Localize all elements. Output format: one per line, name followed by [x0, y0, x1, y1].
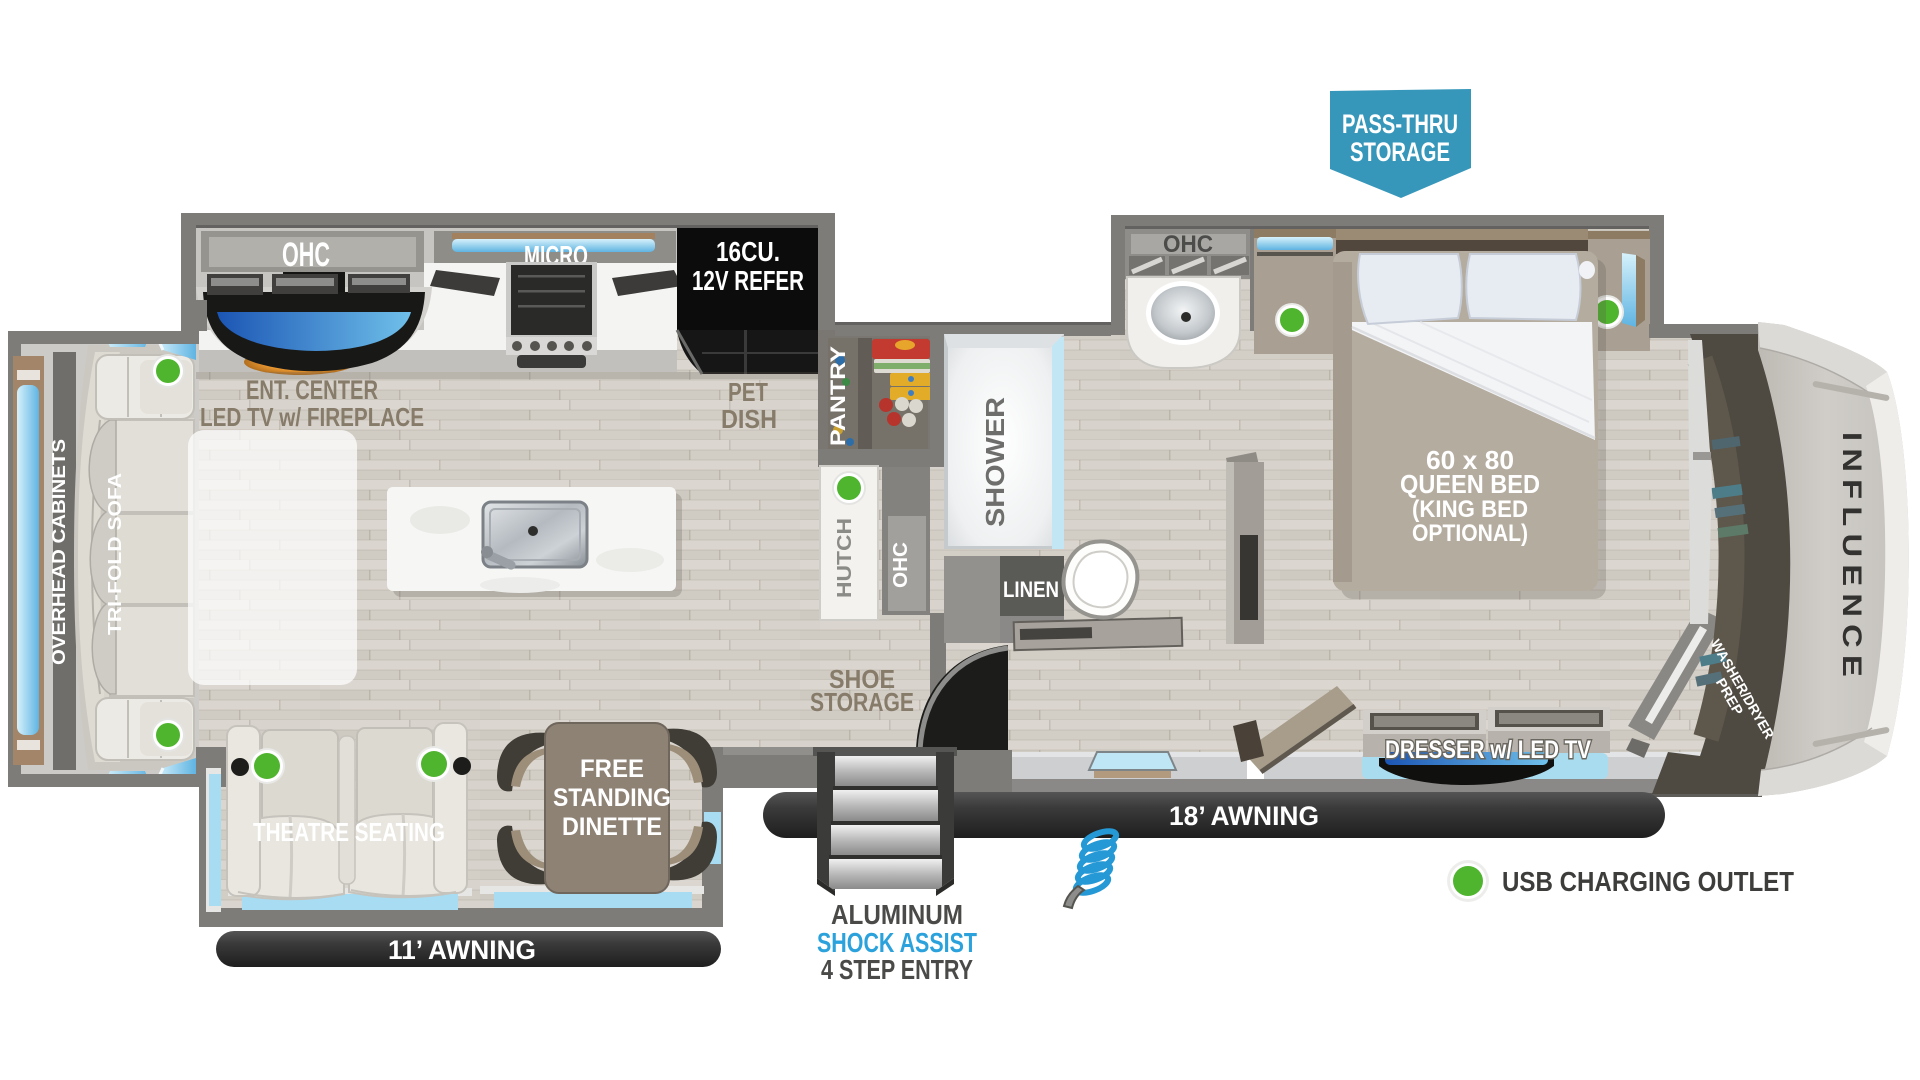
svg-text:STORAGE: STORAGE — [810, 687, 914, 717]
svg-text:ENT. CENTER: ENT. CENTER — [246, 375, 378, 405]
svg-text:16CU.: 16CU. — [716, 236, 780, 267]
svg-text:FREE: FREE — [580, 755, 644, 783]
svg-text:OHC: OHC — [890, 542, 912, 588]
svg-text:OHC: OHC — [1163, 231, 1213, 258]
svg-text:DISH: DISH — [721, 404, 777, 434]
svg-text:LED TV w/ FIREPLACE: LED TV w/ FIREPLACE — [200, 402, 424, 432]
svg-text:QUEEN BED: QUEEN BED — [1400, 469, 1540, 499]
svg-text:LINEN: LINEN — [1003, 577, 1059, 602]
svg-text:4 STEP ENTRY: 4 STEP ENTRY — [821, 954, 973, 985]
svg-text:INFLUENCE: INFLUENCE — [1837, 432, 1867, 684]
svg-text:OVERHEAD CABINETS: OVERHEAD CABINETS — [49, 439, 69, 665]
svg-text:OPTIONAL): OPTIONAL) — [1412, 520, 1528, 547]
svg-text:PANTRY: PANTRY — [827, 346, 850, 446]
svg-text:SHOWER: SHOWER — [980, 397, 1010, 527]
svg-text:DINETTE: DINETTE — [562, 813, 662, 841]
svg-text:STANDING: STANDING — [553, 784, 671, 812]
svg-text:PET: PET — [728, 377, 768, 407]
svg-text:TRI-FOLD SOFA: TRI-FOLD SOFA — [105, 473, 125, 635]
svg-text:HUTCH: HUTCH — [834, 518, 856, 598]
svg-text:11’ AWNING: 11’ AWNING — [388, 935, 536, 965]
svg-text:OHC: OHC — [282, 236, 330, 274]
svg-text:PASS-THRU: PASS-THRU — [1342, 109, 1458, 139]
svg-text:12V REFER: 12V REFER — [692, 265, 804, 296]
svg-text:USB CHARGING OUTLET: USB CHARGING OUTLET — [1502, 866, 1794, 897]
svg-text:18’ AWNING: 18’ AWNING — [1169, 801, 1319, 831]
svg-text:DRESSER w/ LED TV: DRESSER w/ LED TV — [1385, 736, 1591, 764]
svg-text:THEATRE SEATING: THEATRE SEATING — [253, 817, 445, 847]
svg-text:ALUMINUM: ALUMINUM — [831, 899, 963, 930]
svg-text:(KING BED: (KING BED — [1412, 496, 1528, 523]
svg-text:STORAGE: STORAGE — [1350, 137, 1450, 167]
